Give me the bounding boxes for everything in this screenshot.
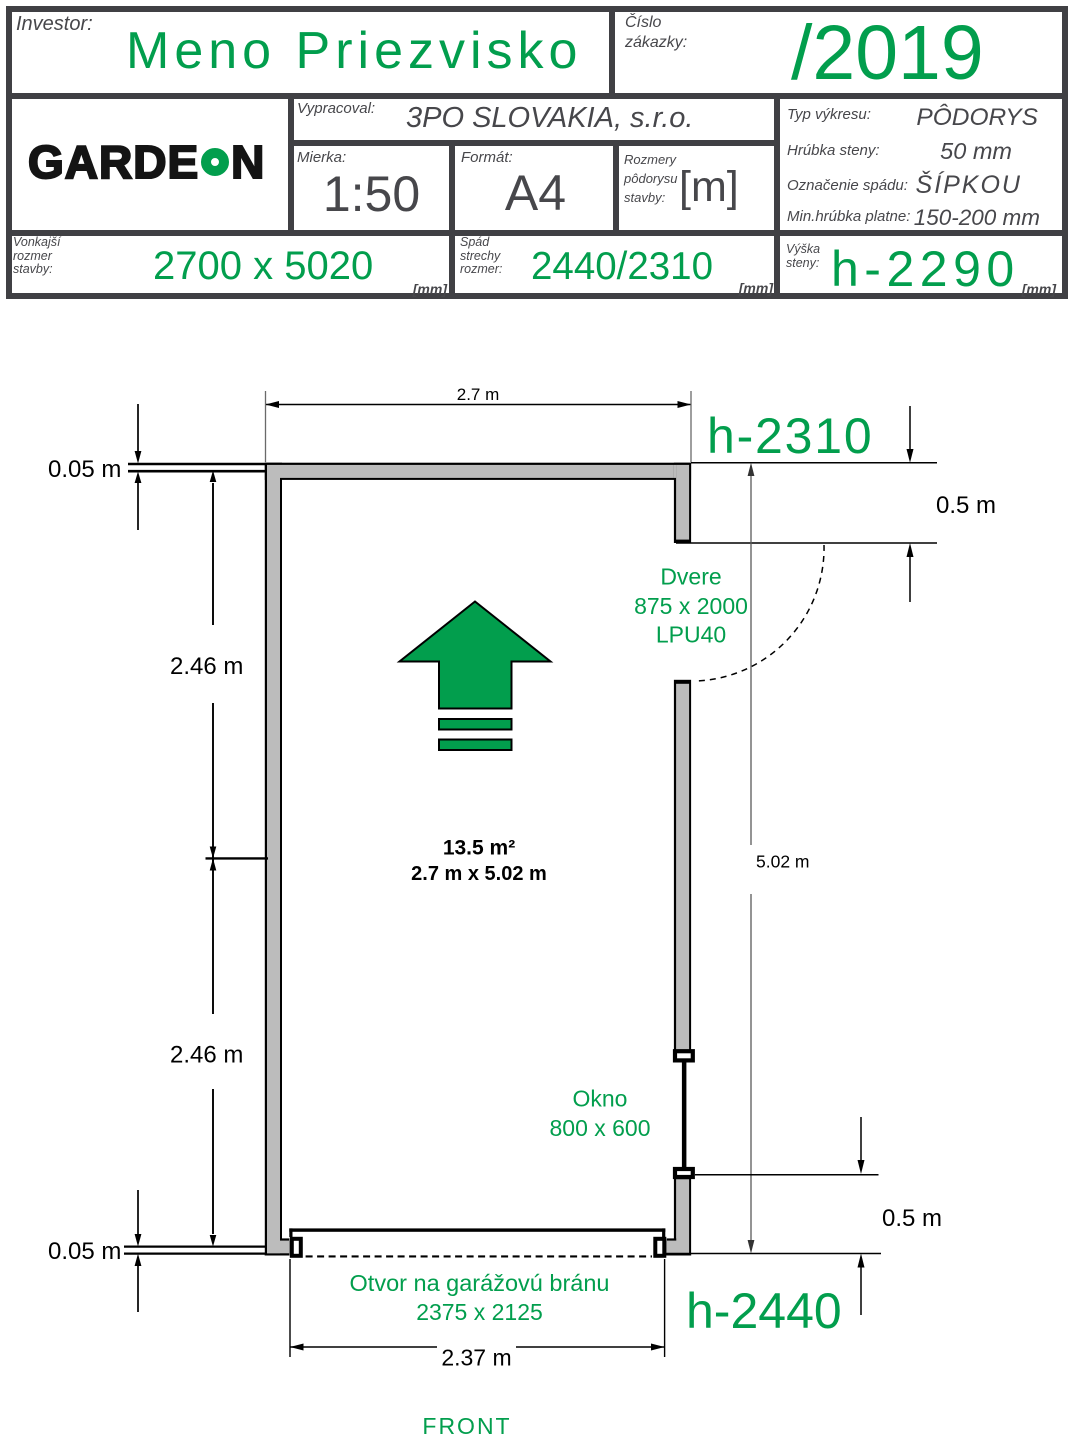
svg-text:FRONT: FRONT	[422, 1413, 511, 1439]
svg-text:Okno: Okno	[573, 1086, 628, 1112]
svg-text:h-2310: h-2310	[707, 408, 874, 464]
svg-text:2.37 m: 2.37 m	[441, 1345, 511, 1371]
svg-text:800 x 600: 800 x 600	[549, 1115, 650, 1141]
svg-text:875 x 2000: 875 x 2000	[634, 593, 748, 619]
svg-text:5.02 m: 5.02 m	[756, 852, 810, 872]
svg-text:h-2440: h-2440	[686, 1283, 842, 1339]
svg-text:Dvere: Dvere	[660, 564, 721, 590]
svg-text:2.46 m: 2.46 m	[170, 1042, 243, 1069]
svg-text:0.05 m: 0.05 m	[48, 456, 121, 483]
svg-text:13.5 m²: 13.5 m²	[443, 837, 515, 860]
svg-text:Otvor na garážovú bránu: Otvor na garážovú bránu	[350, 1270, 610, 1296]
svg-text:2.7 m: 2.7 m	[457, 385, 500, 404]
svg-text:2.7 m x 5.02 m: 2.7 m x 5.02 m	[411, 863, 547, 885]
svg-text:2.46 m: 2.46 m	[170, 653, 243, 680]
svg-text:LPU40: LPU40	[656, 622, 726, 648]
svg-text:2375 x 2125: 2375 x 2125	[416, 1299, 543, 1325]
svg-text:0.5 m: 0.5 m	[936, 492, 996, 519]
svg-text:0.5 m: 0.5 m	[882, 1205, 942, 1232]
svg-text:0.05 m: 0.05 m	[48, 1238, 121, 1265]
